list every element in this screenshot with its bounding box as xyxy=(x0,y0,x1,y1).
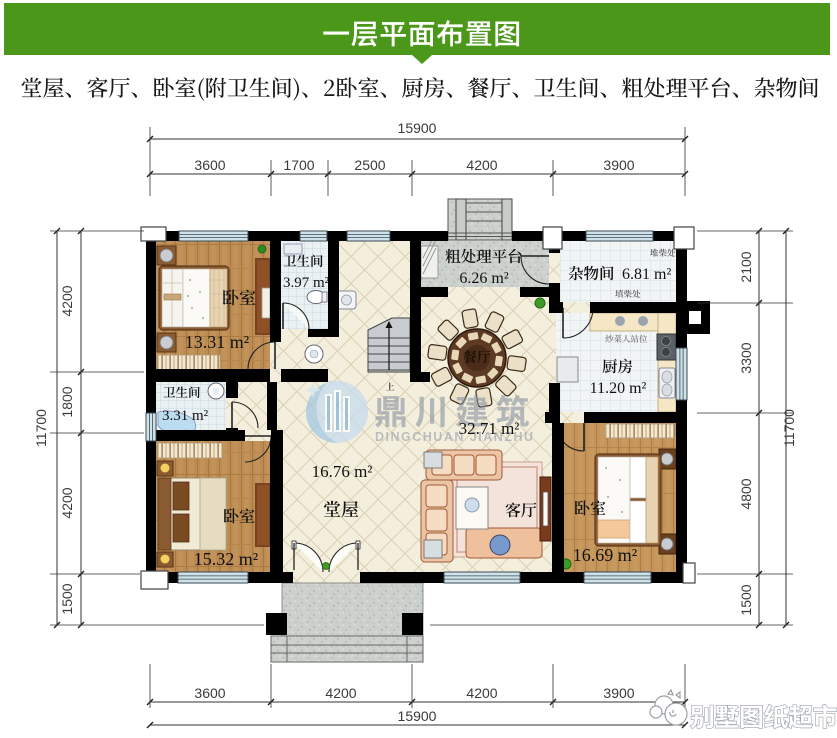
svg-text:4200: 4200 xyxy=(59,285,75,316)
svg-text:11700: 11700 xyxy=(33,409,49,447)
svg-text:6.81 m²: 6.81 m² xyxy=(622,266,671,283)
svg-text:11.20 m²: 11.20 m² xyxy=(590,380,647,397)
svg-text:1700: 1700 xyxy=(283,157,314,173)
svg-text:4800: 4800 xyxy=(738,478,754,509)
svg-text:6.26 m²: 6.26 m² xyxy=(459,270,508,287)
svg-text:16.76 m²: 16.76 m² xyxy=(312,462,373,481)
svg-text:1800: 1800 xyxy=(59,386,75,417)
svg-text:2100: 2100 xyxy=(738,251,754,282)
svg-text:3.31 m²: 3.31 m² xyxy=(162,408,209,424)
svg-text:1500: 1500 xyxy=(738,584,754,615)
svg-text:4200: 4200 xyxy=(325,685,356,701)
svg-text:3300: 3300 xyxy=(738,342,754,373)
svg-text:3.97 m²: 3.97 m² xyxy=(283,275,330,291)
svg-text:1500: 1500 xyxy=(59,583,75,614)
svg-text:15.32 m²: 15.32 m² xyxy=(194,549,258,569)
svg-text:15900: 15900 xyxy=(398,120,437,136)
svg-text:3600: 3600 xyxy=(194,685,225,701)
svg-text:3900: 3900 xyxy=(603,685,634,701)
svg-text:16.69 m²: 16.69 m² xyxy=(573,545,637,565)
svg-text:2500: 2500 xyxy=(354,157,385,173)
svg-text:3600: 3600 xyxy=(194,157,225,173)
svg-text:11700: 11700 xyxy=(781,409,797,447)
svg-text:4200: 4200 xyxy=(59,487,75,518)
svg-text:15900: 15900 xyxy=(398,708,437,724)
svg-text:32.71 m²: 32.71 m² xyxy=(459,419,520,438)
svg-text:4200: 4200 xyxy=(466,157,497,173)
svg-text:4200: 4200 xyxy=(466,685,497,701)
svg-text:13.31 m²: 13.31 m² xyxy=(185,332,249,352)
svg-text:3900: 3900 xyxy=(603,157,634,173)
